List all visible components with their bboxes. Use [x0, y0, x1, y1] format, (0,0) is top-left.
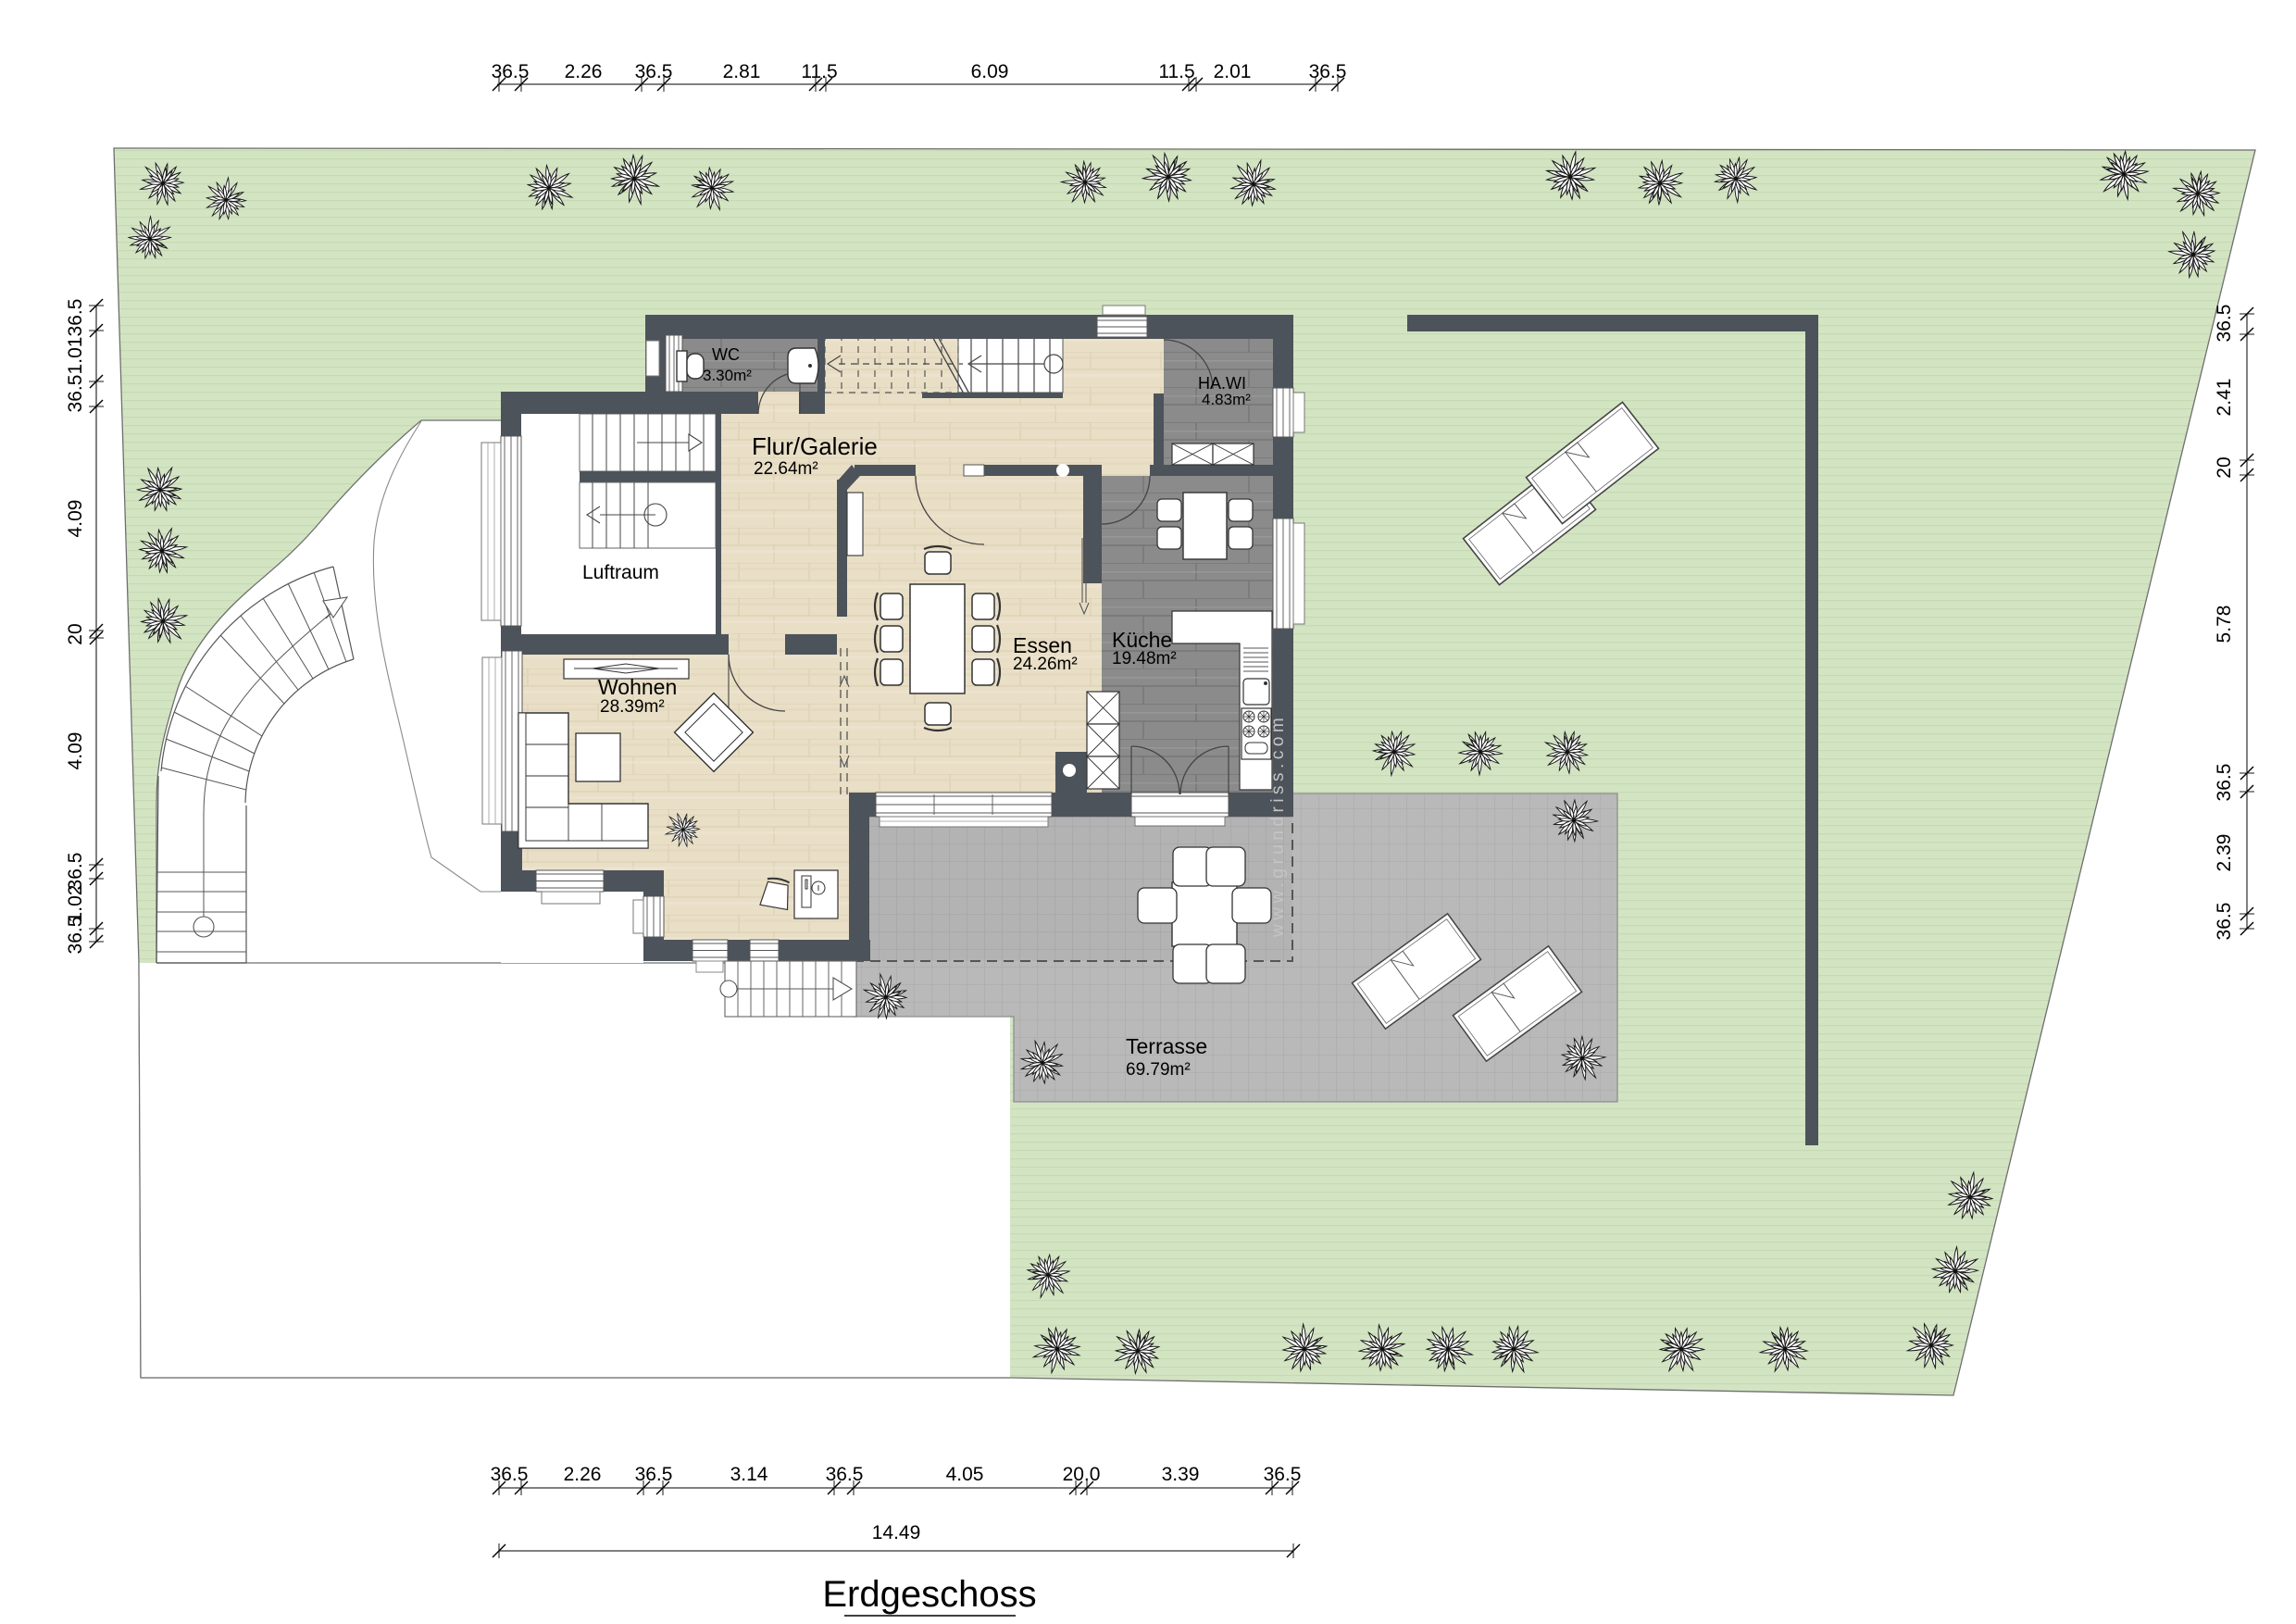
svg-text:1.01: 1.01	[65, 337, 86, 375]
svg-text:36.5: 36.5	[826, 1464, 864, 1485]
svg-text:36.5: 36.5	[65, 375, 86, 413]
svg-text:36.5: 36.5	[65, 853, 86, 891]
svg-text:WC: WC	[712, 345, 740, 364]
svg-text:36.5: 36.5	[492, 61, 530, 82]
svg-text:4.05: 4.05	[946, 1464, 984, 1485]
svg-text:36.5: 36.5	[635, 1464, 673, 1485]
svg-text:3.14: 3.14	[730, 1464, 768, 1485]
svg-text:36.5: 36.5	[2214, 903, 2235, 941]
svg-text:3.39: 3.39	[1162, 1464, 1200, 1485]
svg-text:Erdgeschoss: Erdgeschoss	[822, 1574, 1036, 1615]
svg-text:3.30m²: 3.30m²	[703, 367, 752, 384]
svg-text:20.0: 20.0	[1063, 1464, 1101, 1485]
svg-text:4.83m²: 4.83m²	[1202, 391, 1251, 408]
svg-text:11.5: 11.5	[1158, 61, 1194, 82]
svg-text:36.5: 36.5	[635, 61, 673, 82]
svg-text:20: 20	[2214, 456, 2235, 478]
svg-text:36.5: 36.5	[2214, 305, 2235, 343]
svg-text:4.09: 4.09	[65, 500, 86, 538]
svg-text:2.26: 2.26	[564, 1464, 602, 1485]
svg-text:2.41: 2.41	[2214, 379, 2235, 417]
svg-text:2.26: 2.26	[565, 61, 603, 82]
svg-text:36.5: 36.5	[491, 1464, 529, 1485]
svg-text:2.81: 2.81	[723, 61, 761, 82]
svg-text:11.5: 11.5	[801, 61, 837, 82]
svg-text:Flur/Galerie: Flur/Galerie	[752, 432, 878, 460]
svg-text:5.78: 5.78	[2214, 606, 2235, 643]
svg-text:28.39m²: 28.39m²	[600, 697, 665, 717]
svg-text:24.26m²: 24.26m²	[1013, 655, 1078, 674]
svg-text:20: 20	[65, 623, 86, 644]
svg-text:Wohnen: Wohnen	[598, 675, 677, 699]
svg-text:2.39: 2.39	[2214, 834, 2235, 872]
svg-text:Luftraum: Luftraum	[582, 562, 659, 583]
svg-text:36.5: 36.5	[1264, 1464, 1302, 1485]
svg-text:6.09: 6.09	[971, 61, 1009, 82]
svg-text:www.grundriss.com: www.grundriss.com	[1268, 714, 1288, 938]
svg-text:22.64m²: 22.64m²	[754, 459, 818, 479]
svg-text:36.5: 36.5	[65, 917, 86, 955]
svg-text:HA.WI: HA.WI	[1198, 374, 1246, 393]
svg-text:69.79m²: 69.79m²	[1126, 1060, 1191, 1080]
svg-text:36.5: 36.5	[2214, 764, 2235, 802]
svg-text:14.49: 14.49	[872, 1522, 921, 1543]
svg-text:36.5: 36.5	[65, 299, 86, 337]
svg-text:19.48m²: 19.48m²	[1112, 649, 1177, 668]
svg-text:4.09: 4.09	[65, 732, 86, 770]
svg-text:2.01: 2.01	[1214, 61, 1252, 82]
svg-text:36.5: 36.5	[1309, 61, 1347, 82]
svg-text:Terrasse: Terrasse	[1126, 1034, 1207, 1058]
